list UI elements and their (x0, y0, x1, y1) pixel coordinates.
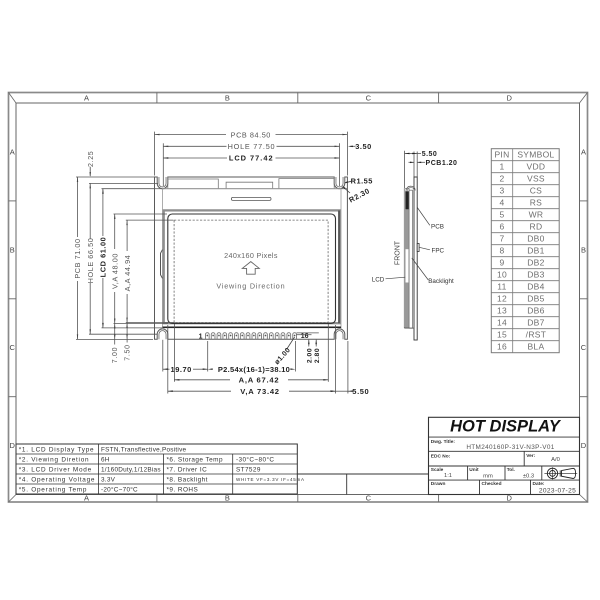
svg-text:14: 14 (497, 318, 507, 328)
svg-text:B: B (225, 94, 230, 103)
svg-text:1/160Duty,1/12Bias: 1/160Duty,1/12Bias (101, 466, 161, 473)
svg-text:3.3V: 3.3V (101, 476, 116, 483)
svg-text:A/0: A/0 (551, 457, 560, 463)
svg-text:Scale: Scale (431, 467, 444, 473)
svg-text:DB4: DB4 (527, 282, 544, 292)
svg-text:SYMBOL: SYMBOL (517, 150, 554, 160)
svg-text:B: B (10, 245, 15, 254)
svg-text:LCD 77.42: LCD 77.42 (229, 154, 274, 163)
svg-text:4: 4 (499, 198, 504, 208)
svg-text:PCB: PCB (431, 223, 444, 230)
svg-text:P2.54x(16-1)=38.10: P2.54x(16-1)=38.10 (218, 365, 290, 374)
svg-text:PCB1.20: PCB1.20 (426, 160, 458, 167)
svg-text:Dwg. Title:: Dwg. Title: (431, 439, 456, 445)
svg-text:5.50: 5.50 (352, 387, 369, 396)
svg-text:*7. Driver IC: *7. Driver IC (167, 466, 208, 473)
svg-text:7: 7 (499, 234, 504, 244)
svg-text:BLA: BLA (527, 342, 544, 352)
svg-text:RD: RD (530, 222, 543, 232)
svg-text:FRONT: FRONT (395, 240, 402, 265)
svg-text:ST7529: ST7529 (236, 466, 261, 473)
svg-text:Viewing Direction: Viewing Direction (216, 282, 285, 291)
svg-text:1: 1 (199, 333, 203, 340)
svg-text:VDD: VDD (527, 162, 546, 172)
svg-text:HOLE 66.50: HOLE 66.50 (86, 238, 95, 284)
svg-text:19.70: 19.70 (171, 365, 192, 374)
svg-text:*2. Viewing Diretion: *2. Viewing Diretion (19, 456, 90, 463)
svg-text:VSS: VSS (527, 174, 545, 184)
svg-text:RS: RS (530, 198, 542, 208)
svg-text:*6. Storage Temp: *6. Storage Temp (167, 456, 223, 463)
svg-text:LCD 61.00: LCD 61.00 (99, 237, 108, 278)
svg-text:Date:: Date: (533, 481, 545, 487)
svg-text:-30°C~80°C: -30°C~80°C (236, 455, 274, 463)
svg-text:1:1: 1:1 (444, 473, 452, 479)
svg-text:*1. LCD Display Type: *1. LCD Display Type (19, 446, 95, 453)
svg-text:PIN: PIN (494, 150, 509, 160)
svg-text:PCB 71.00: PCB 71.00 (73, 238, 82, 278)
svg-text:DB3: DB3 (527, 270, 544, 280)
svg-text:*9. ROHS: *9. ROHS (167, 486, 199, 493)
svg-text:C: C (581, 343, 587, 352)
svg-text:FSTN,Transflective,Positive: FSTN,Transflective,Positive (101, 446, 187, 453)
svg-text:B: B (581, 245, 586, 254)
svg-text:A,A 67.42: A,A 67.42 (239, 376, 280, 385)
svg-text:C: C (9, 343, 15, 352)
svg-text:DB7: DB7 (527, 318, 544, 328)
svg-text:HTM240160P-31V-N3P-V01: HTM240160P-31V-N3P-V01 (466, 444, 554, 451)
svg-text:FPC: FPC (431, 247, 444, 254)
svg-text:16: 16 (301, 333, 309, 340)
svg-text:*5. Operating Temp: *5. Operating Temp (19, 486, 87, 493)
svg-text:3.50: 3.50 (355, 142, 371, 151)
svg-text:mm: mm (483, 473, 493, 479)
svg-text:8: 8 (499, 246, 504, 256)
svg-text:2: 2 (499, 174, 504, 184)
svg-text:12: 12 (497, 294, 507, 304)
svg-text:2.00: 2.00 (306, 348, 313, 363)
svg-text:V,A 73.42: V,A 73.42 (240, 387, 280, 396)
svg-text:2.80: 2.80 (314, 348, 321, 363)
svg-text:/RST: /RST (526, 330, 547, 340)
svg-text:Backlight: Backlight (428, 278, 454, 285)
svg-text:Unit: Unit (469, 467, 479, 473)
svg-text:Checked: Checked (482, 481, 502, 487)
svg-text:7.00: 7.00 (112, 347, 119, 363)
svg-text:DB5: DB5 (527, 294, 544, 304)
svg-text:WR: WR (529, 210, 544, 220)
svg-text:11: 11 (497, 282, 506, 292)
svg-text:HOT DISPLAY: HOT DISPLAY (450, 418, 562, 436)
svg-text:-20°C~70°C: -20°C~70°C (101, 485, 138, 493)
svg-text:PCB 84.50: PCB 84.50 (231, 130, 271, 139)
svg-text:A: A (84, 494, 89, 503)
svg-text:2.25: 2.25 (88, 151, 95, 167)
svg-text:15: 15 (497, 330, 507, 340)
svg-text:10: 10 (497, 270, 507, 280)
svg-text:C: C (366, 94, 372, 103)
svg-text:2023-07-25: 2023-07-25 (539, 487, 576, 494)
svg-text:9: 9 (499, 258, 504, 268)
svg-text:LCD: LCD (372, 276, 385, 283)
svg-text:C: C (366, 494, 372, 503)
svg-text:D: D (9, 441, 15, 450)
svg-text:3: 3 (499, 186, 504, 196)
svg-text:*8. Backlight: *8. Backlight (167, 476, 208, 483)
svg-text:A,A 44.94: A,A 44.94 (123, 255, 132, 292)
svg-text:Tol.: Tol. (507, 467, 515, 473)
svg-text:D: D (581, 441, 587, 450)
svg-text:*3. LCD Driver Mode: *3. LCD Driver Mode (19, 466, 92, 473)
svg-text:DB2: DB2 (527, 258, 544, 268)
svg-text:DB6: DB6 (527, 306, 544, 316)
svg-text:DB0: DB0 (527, 234, 544, 244)
svg-text:HOLE 77.50: HOLE 77.50 (228, 142, 276, 151)
svg-text:1: 1 (499, 162, 504, 172)
svg-text:A: A (10, 147, 15, 156)
svg-text:13: 13 (497, 306, 507, 316)
svg-text:WHITE VF=3.3V IF=45mA: WHITE VF=3.3V IF=45mA (236, 477, 305, 482)
svg-text:Drawn: Drawn (431, 481, 446, 487)
svg-text:D: D (506, 94, 512, 103)
svg-text:±0.3: ±0.3 (523, 473, 534, 479)
svg-text:A: A (581, 147, 586, 156)
svg-text:B: B (225, 494, 230, 503)
svg-text:A: A (84, 94, 89, 103)
svg-text:6H: 6H (101, 456, 110, 463)
svg-text:R1.55: R1.55 (351, 177, 373, 186)
svg-text:DB1: DB1 (527, 246, 544, 256)
svg-text:*4. Operating Voltage: *4. Operating Voltage (19, 476, 96, 483)
svg-text:CS: CS (530, 186, 542, 196)
svg-text:7.50: 7.50 (125, 344, 132, 360)
svg-text:16: 16 (497, 342, 507, 352)
svg-text:V,A 48.00: V,A 48.00 (110, 253, 119, 289)
svg-text:Ver:: Ver: (526, 453, 535, 459)
svg-text:5.50: 5.50 (422, 151, 438, 158)
svg-text:5: 5 (499, 210, 504, 220)
svg-text:EDC No:: EDC No: (431, 453, 451, 459)
svg-text:6: 6 (499, 222, 504, 232)
svg-text:240x160 Pixels: 240x160 Pixels (224, 251, 278, 260)
